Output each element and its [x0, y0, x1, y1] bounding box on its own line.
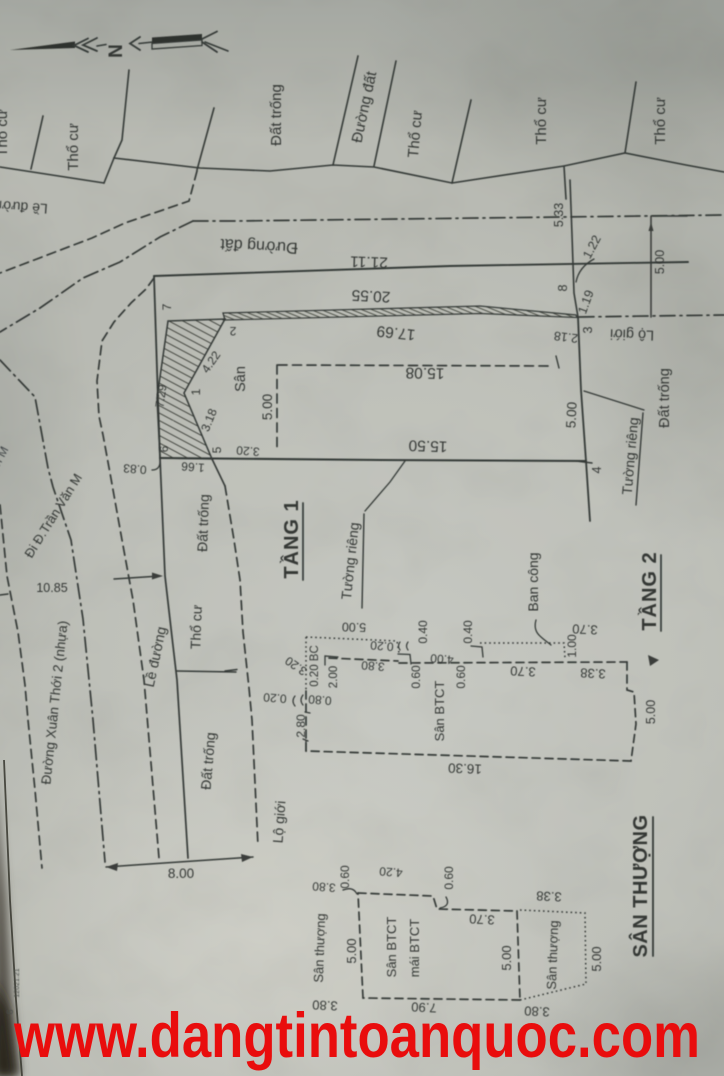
svg-text:0.60: 0.60	[442, 866, 456, 890]
svg-text:TẦNG 2: TẦNG 2	[638, 551, 661, 630]
svg-text:Thổ cư: Thổ cư	[187, 605, 205, 650]
svg-text:5.00: 5.00	[653, 250, 667, 274]
svg-text:5.00: 5.00	[499, 945, 514, 970]
svg-text:15.50: 15.50	[408, 436, 448, 454]
svg-text:Lộ giới: Lộ giới	[610, 325, 655, 343]
svg-text:Thổ cư: Thổ cư	[533, 97, 550, 145]
svg-text:3.20: 3.20	[236, 443, 261, 459]
svg-text:8: 8	[556, 284, 570, 291]
svg-text:TẦNG 1: TẦNG 1	[280, 499, 303, 578]
svg-text:21.11: 21.11	[350, 252, 388, 270]
svg-text:12021.21: 12021.21	[14, 968, 21, 997]
svg-text:5.00: 5.00	[342, 620, 367, 635]
svg-text:6: 6	[157, 445, 171, 452]
svg-text:Đất trống: Đất trống	[194, 494, 212, 552]
svg-text:3.38: 3.38	[536, 888, 562, 904]
svg-text:0.20: 0.20	[370, 638, 395, 654]
svg-text:1.00: 1.00	[565, 634, 579, 658]
svg-text:3.80: 3.80	[312, 879, 337, 895]
svg-text:0.80: 0.80	[308, 692, 333, 708]
svg-text:Sân BTCT: Sân BTCT	[432, 681, 447, 742]
svg-text:1: 1	[189, 388, 203, 395]
svg-text:20.55: 20.55	[351, 286, 391, 305]
svg-text:4: 4	[590, 466, 604, 473]
svg-text:Sân thượng: Sân thượng	[544, 920, 561, 990]
svg-text:4.00: 4.00	[430, 651, 455, 667]
svg-text:3.80: 3.80	[361, 658, 386, 674]
svg-text:www.dangtintoanquoc.com: www.dangtintoanquoc.com	[13, 1001, 700, 1071]
svg-text:1.66: 1.66	[181, 459, 206, 475]
svg-text:4.20: 4.20	[379, 864, 404, 880]
svg-text:0.40: 0.40	[461, 620, 475, 644]
svg-text:Thổ cư: Thổ cư	[0, 109, 11, 157]
svg-text:Sân thượng: Sân thượng	[311, 913, 328, 983]
svg-text:2: 2	[229, 324, 236, 338]
svg-text:2.00: 2.00	[328, 666, 340, 688]
svg-text:Sân: Sân	[233, 366, 249, 392]
svg-text:Đất trống: Đất trống	[268, 84, 285, 146]
svg-text:SÂN THƯỢNG: SÂN THƯỢNG	[628, 814, 652, 957]
svg-text:0.40: 0.40	[416, 620, 430, 644]
svg-text:5.00: 5.00	[260, 394, 275, 420]
svg-text:0.20: 0.20	[263, 690, 288, 706]
svg-text:0.20 BC: 0.20 BC	[309, 645, 321, 687]
svg-text:Lộ giới: Lộ giới	[270, 800, 289, 844]
svg-text:7: 7	[160, 303, 174, 310]
svg-text:Sân BTCT: Sân BTCT	[384, 917, 399, 978]
svg-text:3.70: 3.70	[469, 911, 495, 927]
svg-text:5.00: 5.00	[563, 401, 579, 428]
svg-text:N: N	[106, 44, 127, 58]
svg-text:Thổ cư: Thổ cư	[65, 123, 82, 171]
svg-text:Thổ cư: Thổ cư	[652, 97, 669, 145]
svg-text:5: 5	[210, 446, 224, 453]
svg-text:0.60: 0.60	[454, 665, 468, 689]
svg-text:Đất trống: Đất trống	[657, 368, 673, 428]
svg-text:5.00: 5.00	[344, 938, 359, 963]
svg-text:5.33: 5.33	[552, 203, 566, 227]
svg-text:0.83: 0.83	[123, 461, 148, 477]
svg-text:2.80: 2.80	[294, 714, 308, 738]
svg-text:mái BTCT: mái BTCT	[407, 919, 422, 978]
svg-text:0.60: 0.60	[409, 665, 423, 689]
svg-text:3.38: 3.38	[580, 665, 606, 681]
svg-text:5.00: 5.00	[589, 946, 604, 971]
svg-text:0.60: 0.60	[338, 865, 352, 889]
svg-text:3: 3	[581, 326, 595, 333]
svg-text:3.70: 3.70	[510, 663, 536, 679]
svg-text:16.30: 16.30	[448, 760, 482, 776]
svg-text:15.08: 15.08	[405, 364, 444, 382]
svg-text:Ban công: Ban công	[525, 552, 541, 611]
svg-text:8.00: 8.00	[168, 866, 194, 881]
svg-text:2.18: 2.18	[553, 329, 579, 346]
svg-text:10.85: 10.85	[36, 581, 67, 595]
svg-text:5.00: 5.00	[644, 700, 658, 724]
